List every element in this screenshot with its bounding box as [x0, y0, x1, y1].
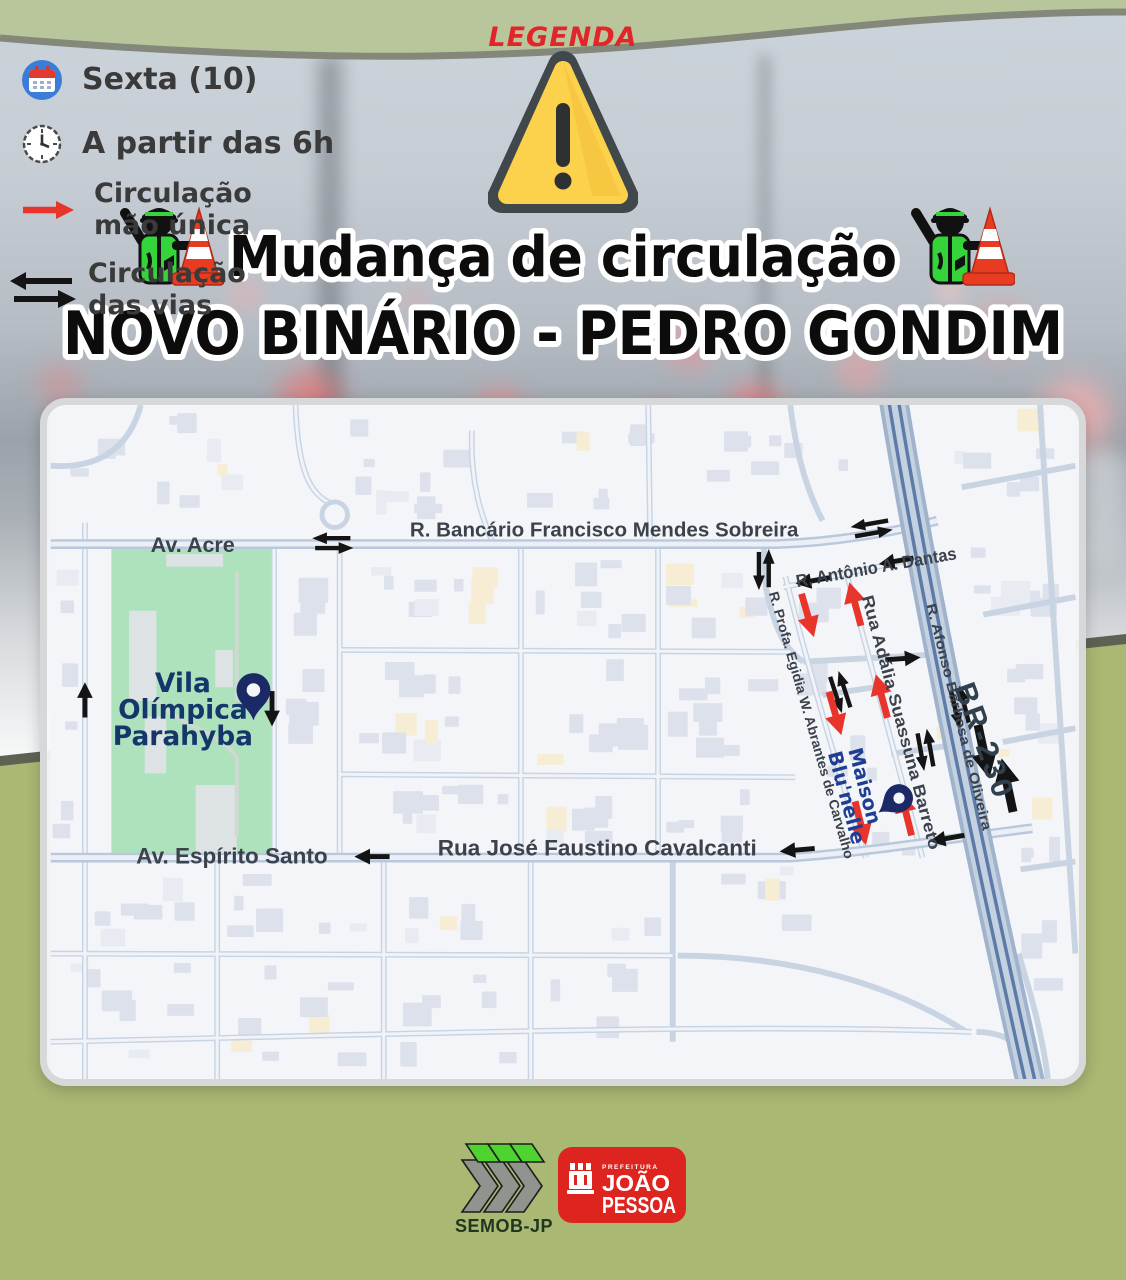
street-label-bancario: R. Bancário Francisco Mendes Sobreira [410, 518, 799, 541]
street-label-av-acre: Av. Acre [151, 532, 235, 557]
poster-title: Mudança de circulação [229, 225, 897, 290]
semob-jp-label: SEMOB-JP [455, 1216, 553, 1236]
legend-item-day: Sexta (10) [82, 62, 258, 98]
semob-jp-logo: SEMOB-JP [448, 1142, 568, 1238]
joao-pessoa-logo: PREFEITURA JOÃO PESSOA [558, 1147, 686, 1223]
legend-item-time: A partir das 6h [82, 126, 334, 162]
legend-item-two-way: Circulação das vias [88, 258, 246, 323]
map-card: Av. Acre R. Bancário Francisco Mendes So… [40, 398, 1086, 1086]
street-label-jose-faustino: Rua José Faustino Cavalcanti [438, 836, 757, 861]
warning-triangle-icon [488, 48, 638, 220]
street-map: Av. Acre R. Bancário Francisco Mendes So… [47, 405, 1079, 1079]
legend-item-one-way: Circulação mão única [94, 178, 252, 243]
svg-text:Parahyba: Parahyba [113, 721, 253, 752]
street-label-espirito-santo: Av. Espírito Santo [136, 843, 327, 868]
calendar-icon [20, 58, 64, 102]
pessoa-label: PESSOA [602, 1192, 676, 1218]
two-way-arrow-icon [8, 271, 78, 309]
traffic-change-poster: Mudança de circulação NOVO BINÁRIO - PED… [0, 0, 1126, 1280]
one-way-arrow-icon [20, 199, 76, 221]
clock-icon [20, 122, 64, 166]
legend-title: LEGENDA [0, 22, 1126, 53]
